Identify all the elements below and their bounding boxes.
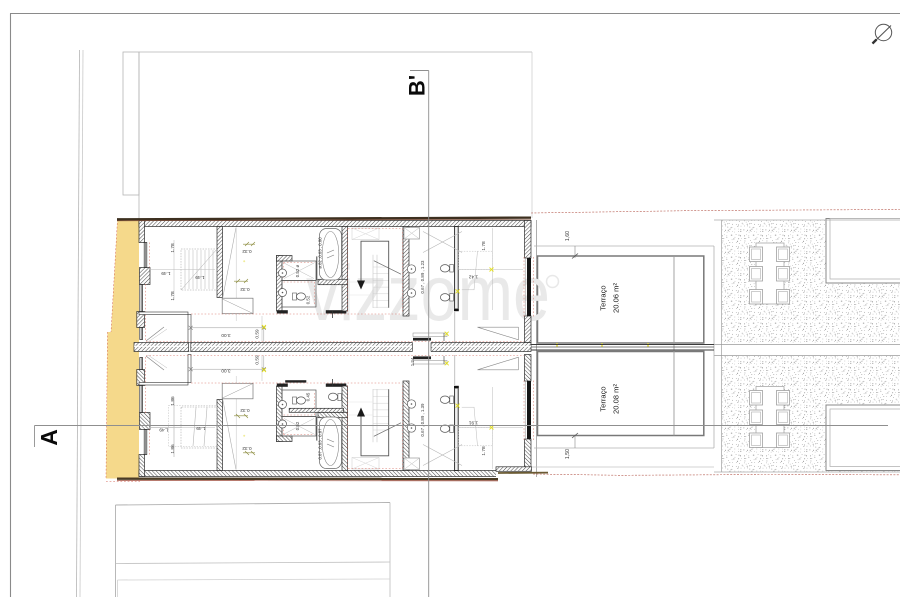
svg-text:0.32: 0.32 [242, 445, 252, 451]
svg-text:1.78: 1.78 [170, 291, 176, 301]
svg-text:0.32: 0.32 [242, 248, 252, 254]
svg-text:1.42: 1.42 [469, 274, 479, 280]
svg-text:Terraço: Terraço [599, 386, 608, 411]
svg-text:B': B' [405, 75, 430, 96]
svg-text:1.91: 1.91 [469, 420, 479, 426]
svg-text:1.49: 1.49 [196, 425, 206, 431]
svg-text:1.78: 1.78 [170, 243, 176, 253]
svg-text:0.59: 0.59 [254, 355, 260, 365]
svg-text:0.32: 0.32 [240, 407, 250, 413]
svg-text:1.49: 1.49 [161, 270, 171, 276]
svg-text:0.59: 0.59 [254, 329, 260, 339]
svg-text:1,60: 1,60 [565, 231, 571, 241]
svg-text:0.67 , 0.89 , 1.23: 0.67 , 0.89 , 1.23 [420, 260, 425, 294]
svg-text:0.52: 0.52 [306, 295, 311, 304]
svg-text:A: A [36, 429, 62, 446]
svg-text:20.08 m²: 20.08 m² [612, 384, 621, 414]
svg-text:1.49: 1.49 [195, 274, 205, 280]
svg-text:0.87 ,0.63 , 0.87: 0.87 ,0.63 , 0.87 [318, 428, 323, 460]
svg-text:Terraço: Terraço [599, 285, 608, 310]
svg-text:1.86: 1.86 [170, 396, 176, 406]
svg-text:1.78: 1.78 [481, 241, 487, 251]
svg-text:0.32: 0.32 [240, 286, 250, 292]
svg-text:0.67 , 0.89 , 1.39: 0.67 , 0.89 , 1.39 [420, 403, 425, 437]
svg-text:0.45: 0.45 [306, 392, 311, 401]
svg-text:ø.82 ,0.63 , 0.80: ø.82 ,0.63 , 0.80 [318, 237, 323, 269]
svg-text:3.00: 3.00 [221, 332, 231, 338]
svg-text:0.52: 0.52 [295, 421, 300, 430]
svg-text:1,50: 1,50 [565, 449, 571, 459]
svg-text:1.49: 1.49 [159, 427, 169, 433]
svg-text:1.78: 1.78 [481, 446, 487, 456]
svg-text:1.24: 1.24 [410, 357, 415, 366]
svg-text:20.06 m²: 20.06 m² [612, 283, 621, 313]
svg-text:0.52 ø: 0.52 ø [295, 264, 300, 277]
svg-text:1.86: 1.86 [170, 444, 176, 454]
svg-text:3.00: 3.00 [221, 368, 231, 374]
